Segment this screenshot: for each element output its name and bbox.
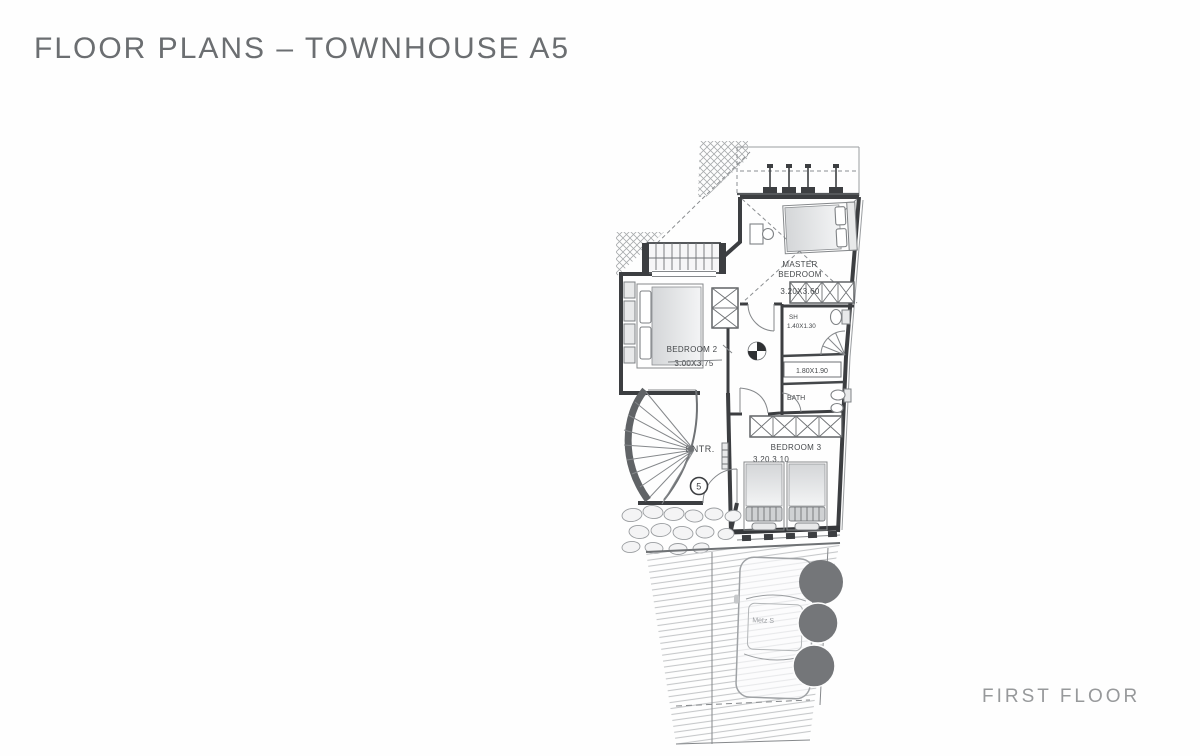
car-mirror — [734, 595, 739, 604]
master-door-arc — [748, 304, 774, 331]
desk — [750, 224, 763, 244]
shower-label: SH — [789, 314, 798, 321]
tree — [793, 645, 835, 687]
pillow — [640, 291, 651, 323]
car-label: Metz S — [752, 617, 774, 625]
master-bedroom-label-1: MASTER — [782, 260, 817, 269]
bedroom-2: BEDROOM 2 3.00X3.75 — [624, 243, 738, 368]
toilet — [831, 389, 851, 402]
bathroom: BATH — [782, 389, 851, 413]
window-planter — [642, 243, 726, 278]
basin — [831, 404, 843, 413]
twin-bed-1 — [744, 462, 784, 530]
bedroom3-door-arc — [740, 388, 768, 413]
radiator — [722, 443, 728, 469]
shelves — [624, 282, 635, 363]
tree — [798, 603, 838, 643]
pillow — [640, 327, 651, 359]
trees — [793, 560, 843, 687]
bedroom2-wardrobe — [712, 288, 738, 328]
shower-dims: 1.40X1.30 — [787, 323, 816, 330]
bedroom3-label: BEDROOM 3 — [771, 443, 822, 452]
master-bedroom-label-2: BEDROOM — [778, 270, 821, 279]
floor-plan-page: FLOOR PLANS – TOWNHOUSE A5 — [0, 0, 1200, 756]
tree — [799, 560, 843, 604]
driveway: Metz S — [646, 543, 843, 744]
twin-bed-2 — [787, 462, 827, 530]
corner-shower — [821, 331, 845, 355]
shower-room: SH 1.40X1.30 — [787, 310, 850, 356]
bedroom2-label: BEDROOM 2 — [667, 345, 718, 354]
stone-path — [621, 504, 741, 554]
dressing-dims: 1.80X1.90 — [796, 368, 828, 375]
floor-plan-drawing: MASTER BEDROOM 3.20X3.60 — [0, 0, 1200, 756]
pillow — [836, 229, 847, 247]
pillow — [835, 207, 846, 225]
door-number-badge: 5 — [691, 478, 708, 495]
chair — [763, 229, 774, 240]
hallway — [748, 342, 766, 360]
master-bedroom-dims: 3.20X3.60 — [780, 287, 819, 296]
terrace — [737, 147, 859, 196]
door-number: 5 — [696, 482, 702, 492]
bedroom3-wardrobe — [750, 416, 842, 437]
toilet — [831, 310, 851, 325]
dressing-area: 1.80X1.90 — [784, 362, 841, 377]
master-bed — [783, 202, 857, 254]
level-marker-pinwheel — [748, 342, 766, 360]
floor-label: FIRST FLOOR — [982, 686, 1140, 708]
bath-label: BATH — [787, 395, 805, 402]
bed-2 — [637, 284, 703, 368]
railing-posts — [763, 164, 843, 193]
